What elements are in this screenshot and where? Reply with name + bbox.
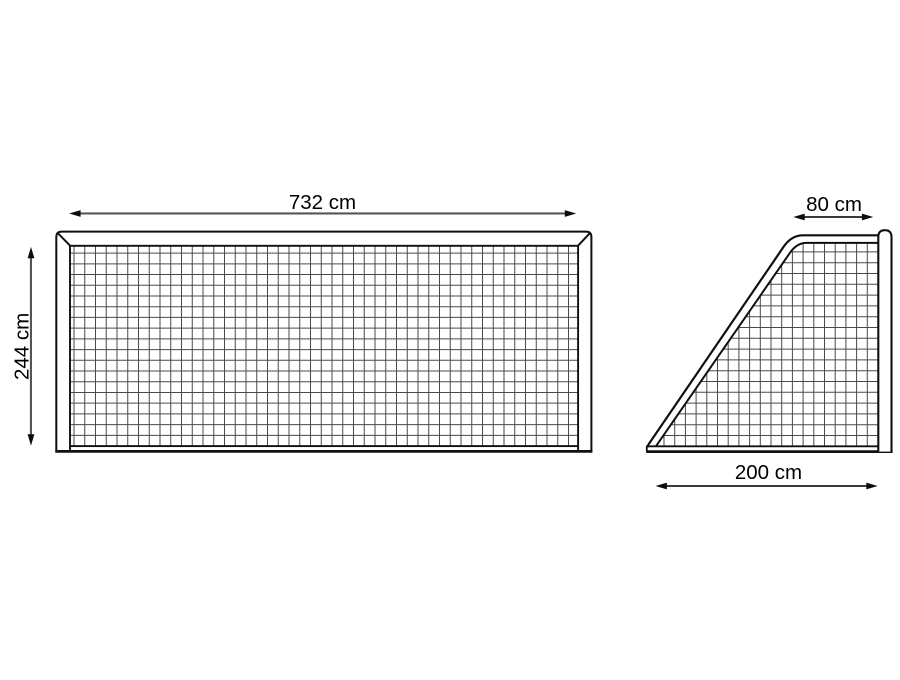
svg-text:244 cm: 244 cm	[11, 313, 34, 380]
svg-text:732 cm: 732 cm	[289, 191, 356, 214]
svg-text:80 cm: 80 cm	[806, 193, 862, 216]
svg-text:200 cm: 200 cm	[735, 461, 802, 484]
